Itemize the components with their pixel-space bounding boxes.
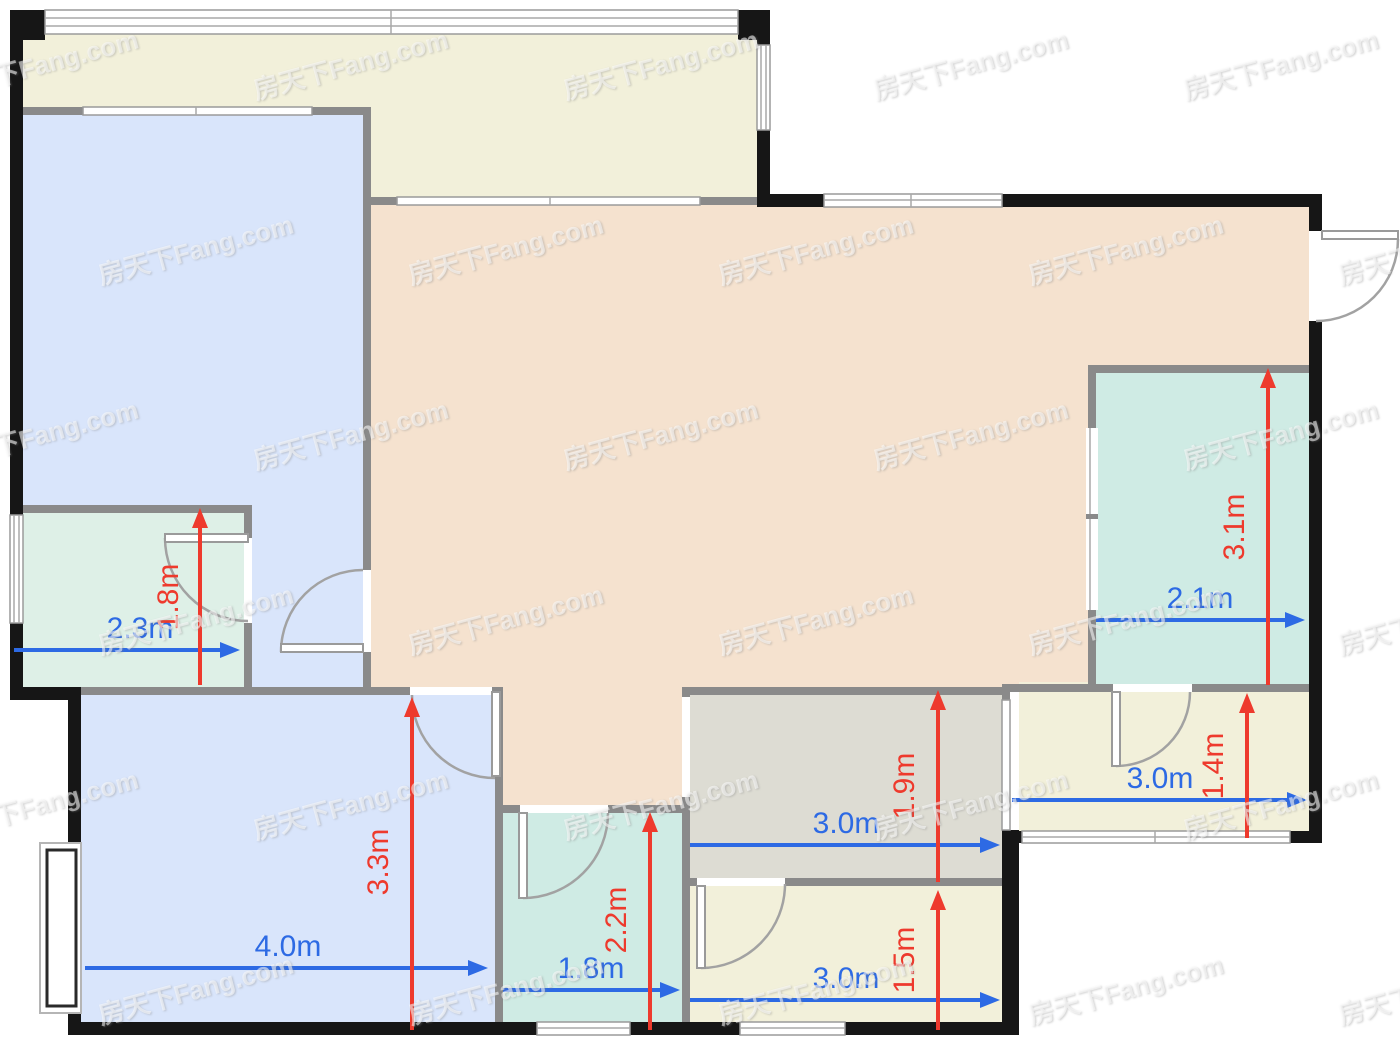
dim-label: 3.0m bbox=[813, 807, 880, 840]
balcony-right-window bbox=[757, 45, 770, 130]
wall-segment bbox=[630, 1022, 740, 1035]
dim-label: 1.5m bbox=[888, 927, 921, 994]
dim-label: 3.3m bbox=[362, 829, 395, 896]
room-east-bathroom bbox=[1088, 365, 1309, 690]
room-living-left bbox=[363, 197, 760, 690]
bathroom-sliding-door bbox=[1086, 428, 1098, 610]
balcony-sliding-window bbox=[397, 197, 700, 205]
dim-label: 1.8m bbox=[152, 564, 185, 631]
wall-segment bbox=[10, 505, 23, 515]
opening bbox=[363, 570, 371, 652]
dim-label: 4.0m bbox=[255, 930, 322, 963]
opening bbox=[682, 697, 690, 797]
entry-door bbox=[1316, 231, 1398, 321]
wall-segment bbox=[845, 1022, 1019, 1035]
wall-segment bbox=[682, 797, 690, 805]
wall-segment bbox=[68, 687, 81, 843]
south-room-window bbox=[740, 1022, 845, 1035]
room-hallway bbox=[495, 687, 690, 813]
wall-segment bbox=[363, 652, 371, 690]
top-right-window bbox=[824, 194, 1002, 207]
wall-segment bbox=[503, 805, 520, 813]
wall-segment bbox=[682, 878, 697, 886]
dim-label: 1.8m bbox=[558, 952, 625, 985]
opening bbox=[1309, 231, 1322, 321]
opening bbox=[1113, 684, 1192, 692]
dim-label: 2.1m bbox=[1167, 582, 1234, 615]
wall-segment bbox=[75, 687, 410, 695]
green-room-window bbox=[10, 515, 23, 623]
dim-label: 2.2m bbox=[600, 887, 633, 954]
floor-plan-svg: 2.3m 4.0m 1.8m 3.0m 3.0m 3.0m bbox=[0, 0, 1400, 1045]
opening bbox=[697, 878, 785, 886]
opening bbox=[520, 805, 608, 813]
wall-segment bbox=[10, 10, 23, 505]
dim-label: 3.1m bbox=[1218, 494, 1251, 561]
wall-segment bbox=[1002, 684, 1113, 692]
hall-bath-window bbox=[537, 1022, 630, 1035]
room-bottom-bedroom bbox=[75, 687, 503, 1035]
kitchen-pass-window bbox=[1002, 700, 1010, 830]
wall-segment bbox=[682, 805, 690, 1022]
balcony-railing-window bbox=[45, 10, 738, 34]
dim-label: 3.0m bbox=[1127, 762, 1194, 795]
wall-segment bbox=[10, 505, 252, 513]
wall-segment bbox=[1309, 194, 1322, 231]
wall-segment bbox=[1309, 321, 1322, 843]
wall-segment bbox=[363, 107, 371, 570]
wall-segment bbox=[1088, 365, 1096, 428]
wall-segment bbox=[1002, 830, 1019, 1035]
opening bbox=[410, 687, 492, 695]
wall-segment bbox=[757, 194, 824, 207]
wall-segment bbox=[1192, 684, 1309, 692]
wall-segment bbox=[244, 623, 252, 690]
room-south bbox=[690, 878, 1010, 1035]
bay-window bbox=[40, 843, 81, 1013]
wall-segment bbox=[690, 687, 1010, 695]
wall-segment bbox=[1002, 194, 1322, 207]
wall-segment bbox=[785, 878, 1010, 886]
bedroom-balcony-window bbox=[83, 107, 312, 115]
wall-segment bbox=[1088, 610, 1096, 690]
wall-segment bbox=[312, 107, 371, 115]
room-hall-bathroom bbox=[503, 805, 690, 1035]
opening bbox=[244, 538, 252, 623]
wall-segment bbox=[682, 687, 690, 697]
wall-segment bbox=[700, 197, 760, 205]
wall-segment bbox=[68, 1022, 537, 1035]
wall-segment bbox=[10, 10, 45, 40]
dim-label: 1.9m bbox=[888, 753, 921, 820]
dim-label: 1.4m bbox=[1197, 733, 1230, 800]
wall-segment bbox=[1088, 365, 1309, 373]
east-room-window bbox=[1022, 831, 1290, 843]
wall-segment bbox=[757, 10, 770, 45]
room-green bbox=[10, 505, 252, 690]
dim-label: 3.0m bbox=[813, 962, 880, 995]
floor-plan: 2.3m 4.0m 1.8m 3.0m 3.0m 3.0m bbox=[0, 0, 1400, 1045]
room-kitchen bbox=[690, 687, 1010, 886]
wall-segment bbox=[608, 805, 690, 813]
wall-segment bbox=[371, 197, 397, 205]
wall-segment bbox=[1290, 831, 1322, 843]
